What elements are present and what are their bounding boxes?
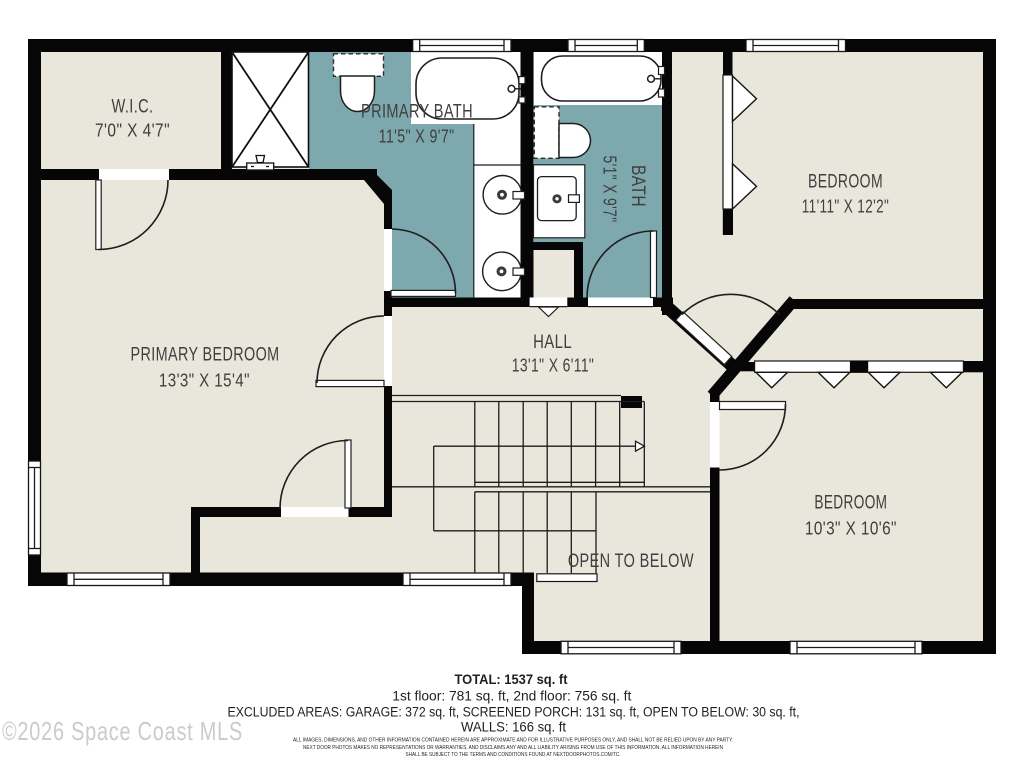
svg-text:HALL: HALL — [533, 332, 572, 353]
svg-text:BEDROOM: BEDROOM — [808, 172, 883, 193]
svg-text:NEXT DOOR PHOTOS MAKES NO REPR: NEXT DOOR PHOTOS MAKES NO REPRESENTATION… — [303, 745, 723, 751]
svg-text:ALL IMAGES, DIMENSIONS, AND OT: ALL IMAGES, DIMENSIONS, AND OTHER INFORM… — [293, 738, 733, 744]
svg-text:11'11" X 12'2": 11'11" X 12'2" — [802, 197, 890, 217]
svg-text:5'1" X 9'7": 5'1" X 9'7" — [599, 156, 619, 223]
svg-text:13'3" X 15'4": 13'3" X 15'4" — [159, 371, 250, 391]
svg-text:TOTAL: 1537 sq. ft: TOTAL: 1537 sq. ft — [455, 672, 568, 688]
svg-text:W.I.C.: W.I.C. — [112, 97, 154, 118]
svg-text:EXCLUDED AREAS: GARAGE: 372 sq: EXCLUDED AREAS: GARAGE: 372 sq. ft, SCRE… — [228, 705, 800, 721]
svg-text:BEDROOM: BEDROOM — [814, 493, 887, 514]
svg-text:10'3" X 10'6": 10'3" X 10'6" — [805, 519, 897, 539]
svg-text:7'0" X 4'7": 7'0" X 4'7" — [95, 121, 170, 141]
svg-text:BATH: BATH — [627, 165, 648, 207]
svg-text:PRIMARY BATH: PRIMARY BATH — [361, 101, 473, 122]
svg-text:SHALL BE SUBJECT TO THE TERMS: SHALL BE SUBJECT TO THE TERMS AND CONDIT… — [406, 752, 621, 758]
svg-text:11'5" X 9'7": 11'5" X 9'7" — [379, 127, 455, 147]
svg-text:PRIMARY BEDROOM: PRIMARY BEDROOM — [131, 345, 280, 366]
svg-text:13'1" X 6'11": 13'1" X 6'11" — [512, 356, 595, 376]
svg-text:©2026 Space Coast MLS: ©2026 Space Coast MLS — [2, 716, 243, 746]
svg-text:1st floor: 781 sq. ft, 2nd flo: 1st floor: 781 sq. ft, 2nd floor: 756 sq… — [392, 688, 631, 704]
svg-text:OPEN TO BELOW: OPEN TO BELOW — [568, 551, 694, 572]
svg-text:WALLS: 166 sq. ft: WALLS: 166 sq. ft — [461, 720, 566, 736]
